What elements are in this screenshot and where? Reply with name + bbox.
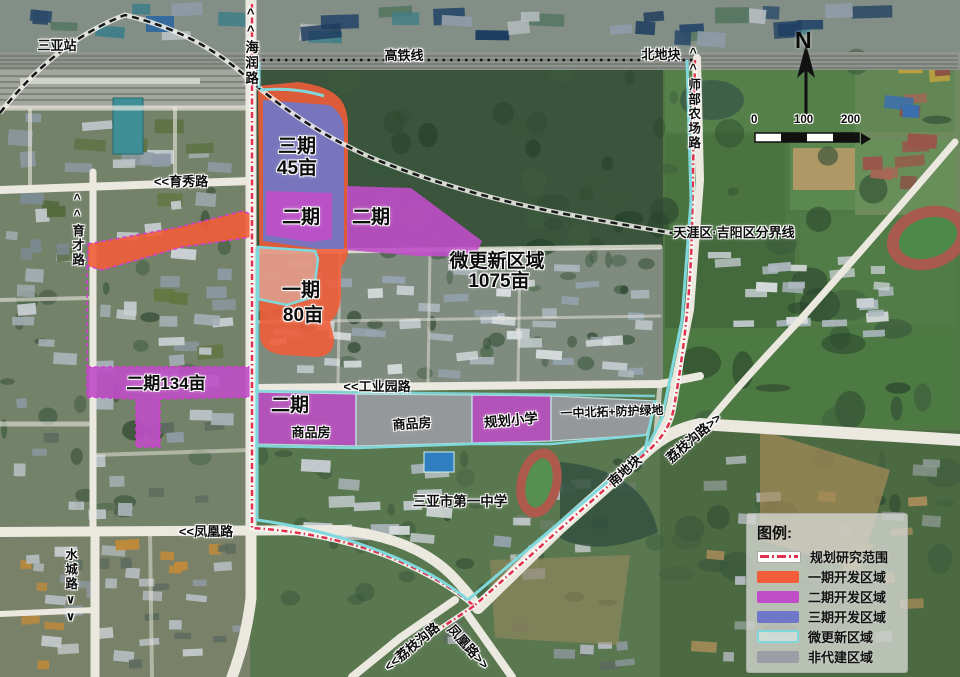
legend-swatch-nonbuild <box>757 651 799 663</box>
legend-item-research: 规划研究范围 <box>757 550 907 563</box>
phase2-134-label: 二期134亩 <box>126 375 205 393</box>
legend-title: 图例: <box>757 522 907 543</box>
micro-zone-label-line2: 1075亩 <box>468 272 529 292</box>
no1-school-label: 三亚市第一中学 <box>413 495 508 509</box>
gongyeyuan-road-label: <<工业园路 <box>343 380 410 394</box>
shuicheng-road-label: 水城路∨∨ <box>63 548 76 626</box>
micro-zone-label-line1: 微更新区域 <box>449 252 544 272</box>
phase1-label-line1: 一期 <box>282 281 320 301</box>
station-label: 三亚站 <box>37 39 76 53</box>
phase3-label-line2: 45亩 <box>277 159 317 179</box>
legend-panel: 图例: 规划研究范围 一期开发区域 二期开发区域 三期开发区域 微更新区域 非代… <box>746 513 908 673</box>
legend-swatch-research-line <box>757 551 801 563</box>
legend-item-micro: 微更新区域 <box>757 630 907 643</box>
band-housing2-label: 商品房 <box>392 416 432 432</box>
yucai-road-label: ^^育才路 <box>70 192 83 268</box>
shibu-road-label: ^^师部农场路 <box>686 46 699 151</box>
yuxiu-road-label: <<育秀路 <box>154 175 208 189</box>
district-boundary-label: 天涯区·吉阳区分界线 <box>673 226 794 240</box>
scale-tick-0: 0 <box>751 114 757 126</box>
north-plot-label: 北地块 <box>641 48 680 62</box>
phase3-label-line1: 三期 <box>278 137 316 157</box>
phase1-label-line2: 80亩 <box>283 306 323 326</box>
legend-swatch-phase3 <box>757 611 799 623</box>
legend-item-phase1: 一期开发区域 <box>757 570 907 583</box>
band-phase2-label: 二期 <box>271 396 309 416</box>
gaotie-line-label: 高铁线 <box>384 49 423 63</box>
swimming-pool <box>424 452 454 472</box>
hairun-road-label: ^^海润路 <box>243 6 257 87</box>
planning-map: 三亚站 ^^海润路 高铁线 北地块 ^^师部农场路 <<育秀路 ^^育才路 天涯… <box>0 0 960 677</box>
phase2-right-label: 二期 <box>352 208 390 228</box>
legend-item-phase2: 二期开发区域 <box>757 590 907 603</box>
phase2-left-label: 二期 <box>282 208 320 228</box>
scale-tick-100: 100 <box>794 114 813 126</box>
scale-tick-200: 200 <box>841 114 860 126</box>
legend-item-nonbuild: 非代建区域 <box>757 650 907 663</box>
legend-swatch-micro <box>757 630 799 643</box>
legend-item-phase3: 三期开发区域 <box>757 610 907 623</box>
north-label: N <box>795 27 812 54</box>
band-housing1-label: 商品房 <box>291 426 330 440</box>
legend-swatch-phase2 <box>757 591 799 603</box>
legend-swatch-phase1 <box>757 571 799 583</box>
fenghuang-road-label: <<凤凰路 <box>179 525 233 539</box>
